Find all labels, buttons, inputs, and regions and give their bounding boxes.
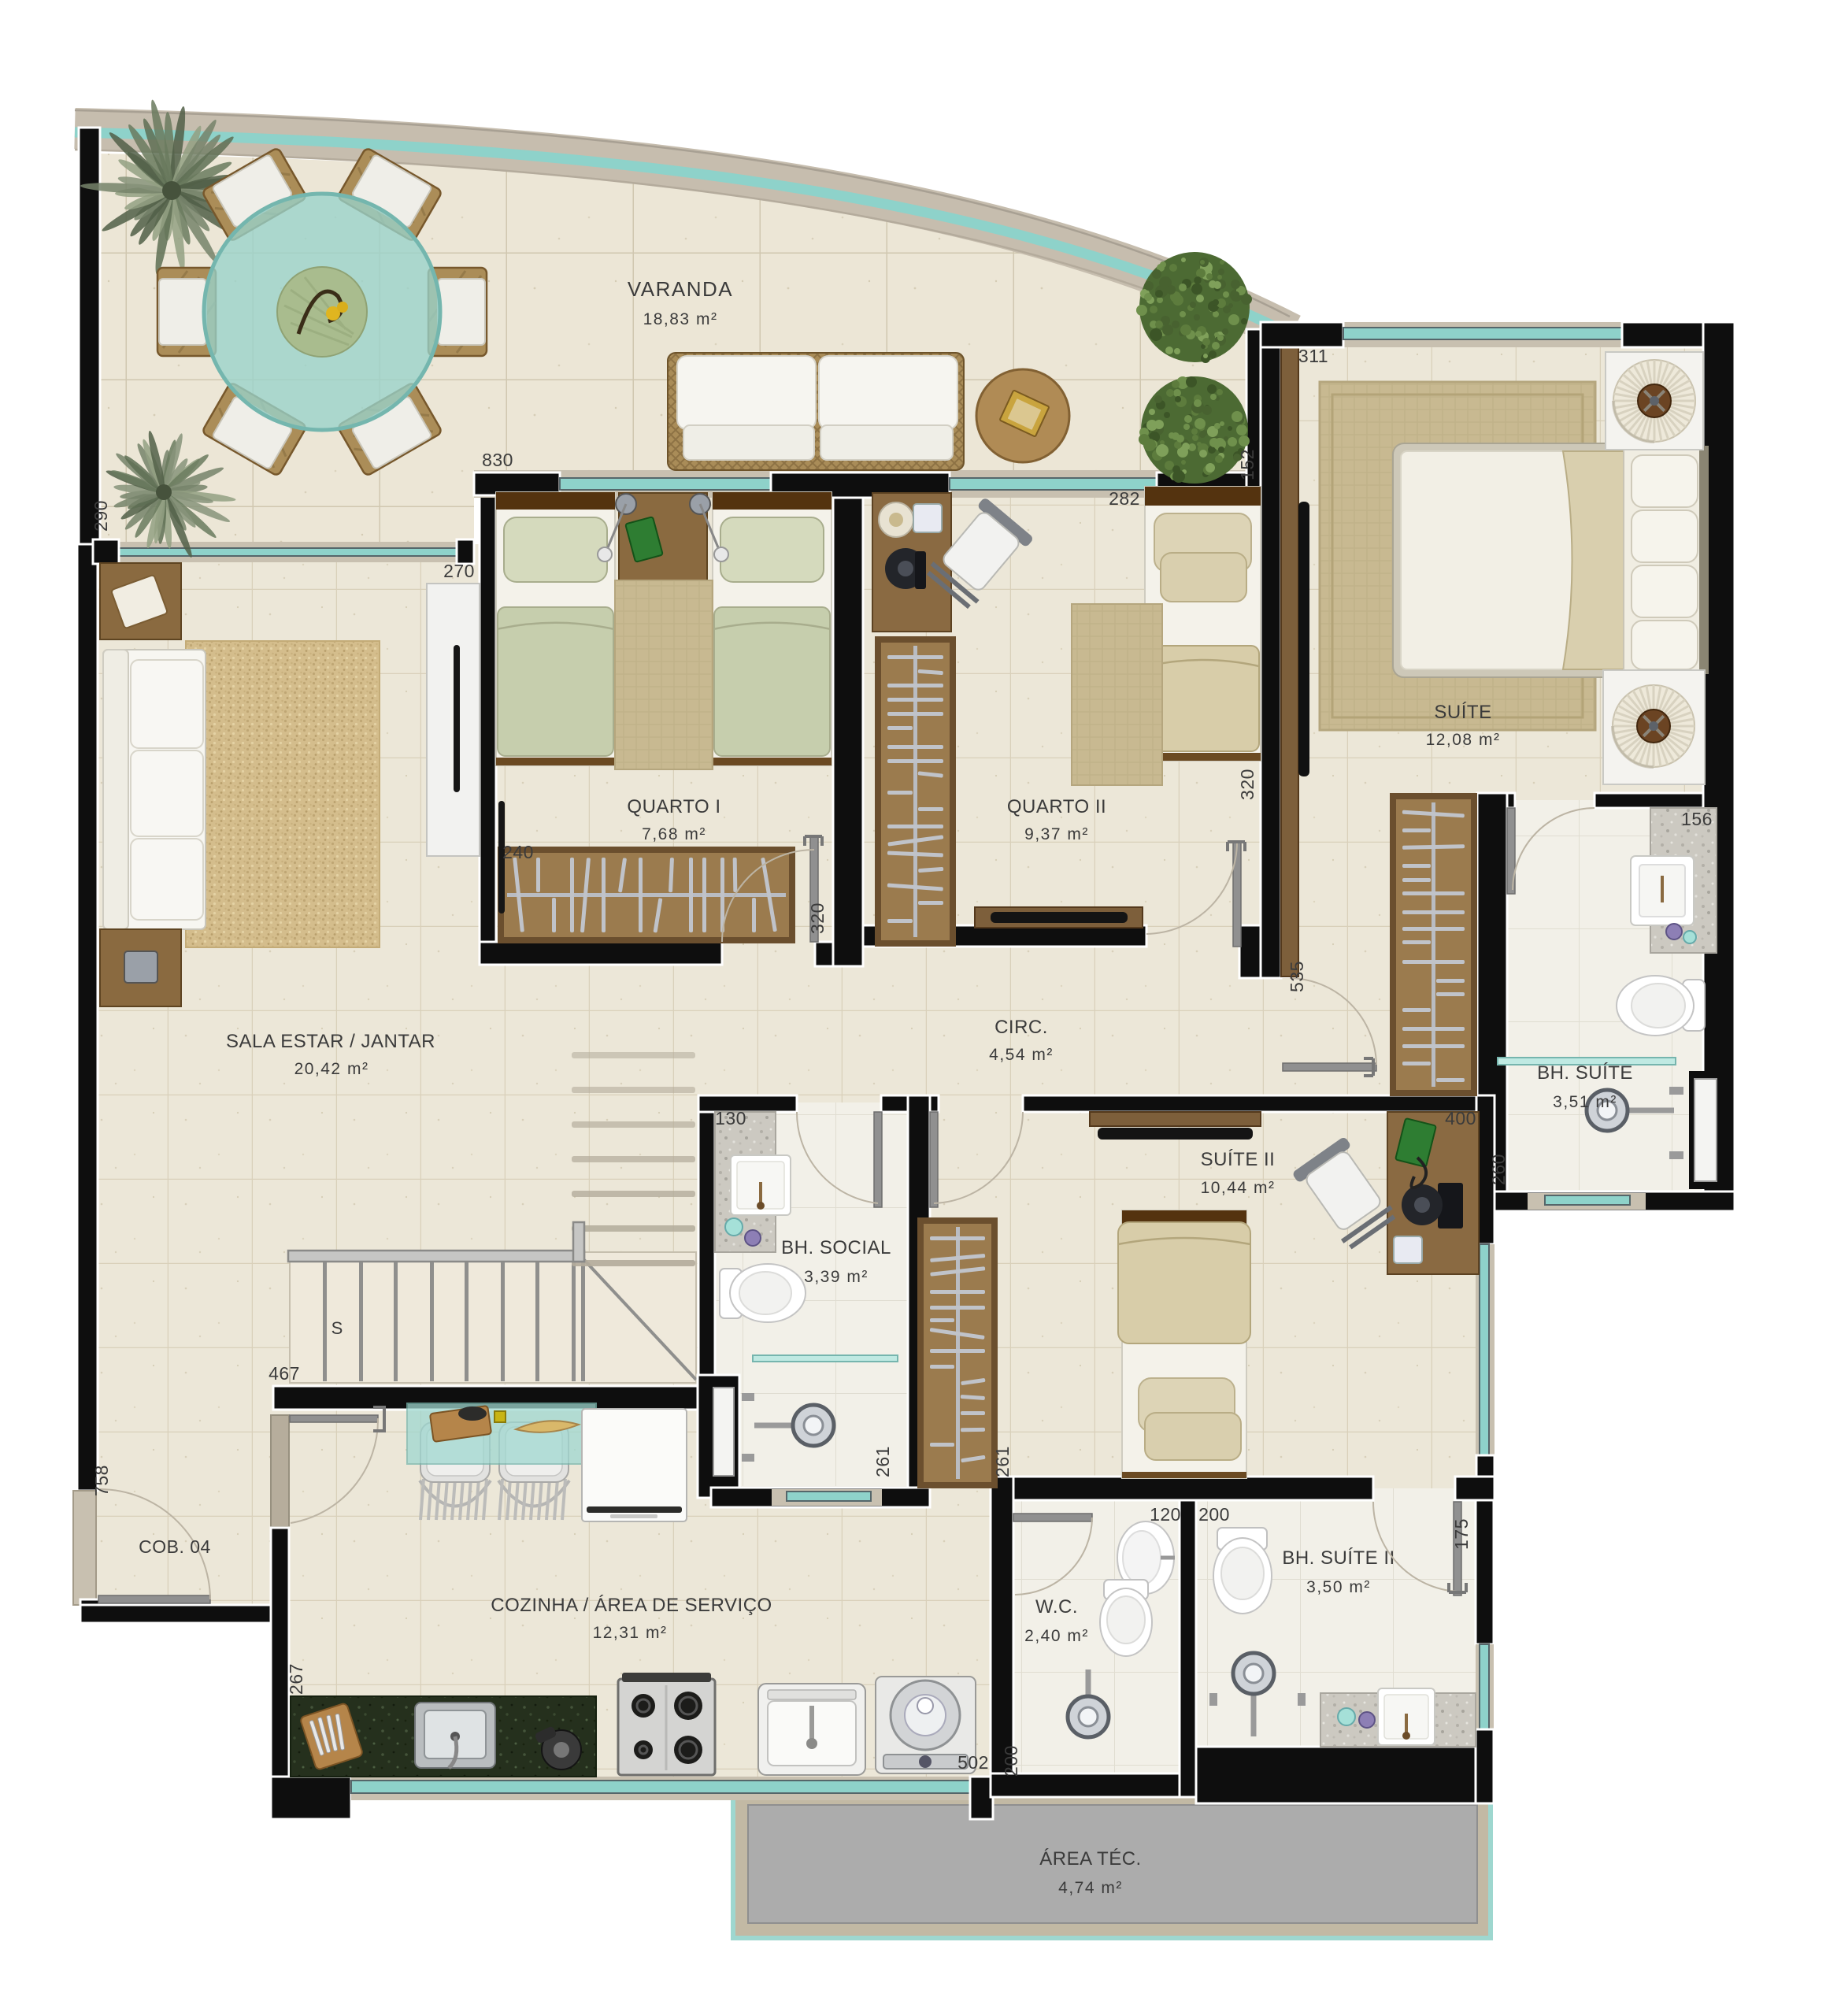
svg-text:9,37 m²: 9,37 m² [1024,825,1089,843]
svg-text:SUÍTE: SUÍTE [1434,702,1491,723]
svg-text:SUÍTE II: SUÍTE II [1201,1149,1276,1170]
svg-text:502: 502 [957,1752,989,1773]
svg-text:3,39 m²: 3,39 m² [804,1268,869,1286]
svg-text:400: 400 [1445,1108,1476,1128]
svg-text:200: 200 [1001,1745,1021,1777]
svg-text:175: 175 [1451,1518,1472,1550]
svg-text:QUARTO II: QUARTO II [1007,796,1106,817]
svg-text:758: 758 [91,1465,112,1496]
svg-text:467: 467 [269,1363,300,1384]
svg-text:270: 270 [443,561,475,581]
svg-text:320: 320 [807,902,828,934]
svg-text:200: 200 [1198,1504,1230,1525]
svg-text:830: 830 [482,450,513,470]
svg-text:152: 152 [1237,449,1257,480]
svg-text:267: 267 [286,1663,306,1695]
svg-text:4,74 m²: 4,74 m² [1058,1879,1123,1897]
svg-text:156: 156 [1681,809,1713,829]
svg-text:130: 130 [715,1108,746,1128]
svg-text:CIRC.: CIRC. [994,1017,1048,1038]
svg-text:12,08 m²: 12,08 m² [1426,731,1501,749]
svg-text:7,68 m²: 7,68 m² [642,825,706,843]
svg-text:SALA ESTAR / JANTAR: SALA ESTAR / JANTAR [226,1031,435,1052]
svg-text:BH. SUÍTE II: BH. SUÍTE II [1282,1547,1395,1569]
svg-text:282: 282 [1109,488,1140,509]
svg-text:260: 260 [1488,1154,1509,1185]
svg-text:BH. SOCIAL: BH. SOCIAL [781,1237,891,1258]
svg-text:3,50 m²: 3,50 m² [1306,1578,1371,1596]
svg-text:240: 240 [502,842,534,862]
svg-text:12,31 m²: 12,31 m² [593,1624,668,1642]
svg-text:COZINHA / ÁREA DE SERVIÇO: COZINHA / ÁREA DE SERVIÇO [491,1595,772,1616]
svg-text:535: 535 [1287,961,1307,992]
svg-text:261: 261 [872,1446,893,1477]
svg-text:320: 320 [1237,769,1257,800]
svg-text:20,42 m²: 20,42 m² [294,1060,369,1078]
svg-text:S: S [331,1318,343,1338]
svg-text:VARANDA: VARANDA [628,277,733,301]
svg-text:18,83 m²: 18,83 m² [643,310,718,328]
svg-text:311: 311 [1298,346,1328,366]
svg-text:261: 261 [992,1446,1013,1477]
svg-text:COB. 04: COB. 04 [139,1536,211,1557]
svg-text:ÁREA TÉC.: ÁREA TÉC. [1039,1848,1141,1870]
svg-text:BH. SUÍTE: BH. SUÍTE [1537,1062,1633,1084]
svg-text:3,51 m²: 3,51 m² [1553,1093,1617,1111]
svg-text:W.C.: W.C. [1035,1596,1078,1618]
svg-text:10,44 m²: 10,44 m² [1201,1179,1276,1197]
svg-text:120: 120 [1150,1504,1181,1525]
svg-text:2,40 m²: 2,40 m² [1024,1627,1089,1645]
svg-text:290: 290 [91,500,111,532]
svg-text:4,54 m²: 4,54 m² [989,1046,1054,1064]
svg-text:QUARTO I: QUARTO I [627,796,720,817]
